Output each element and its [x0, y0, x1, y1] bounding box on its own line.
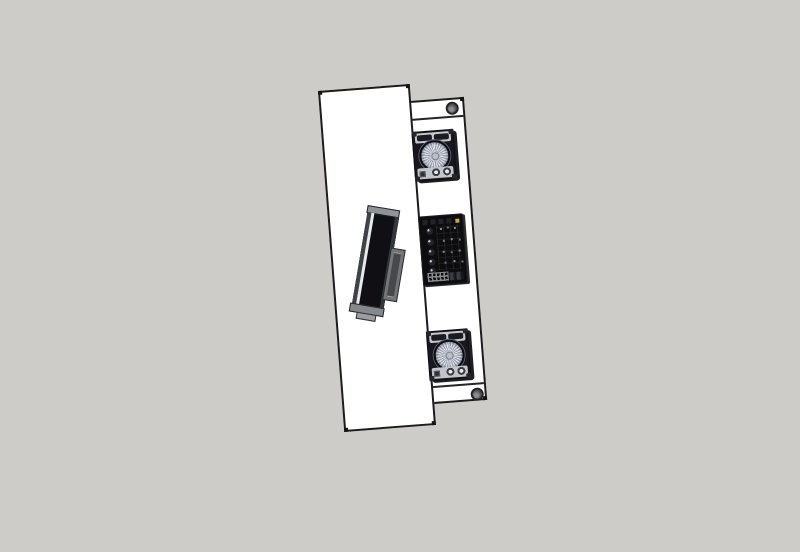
speaker-corner-cap	[426, 331, 431, 336]
speaker-corner-cap	[429, 376, 434, 381]
speaker-corner-cap	[463, 328, 468, 333]
mixer-control-specks	[419, 217, 421, 219]
corner-endpoint	[318, 91, 322, 95]
mixer-knob	[428, 259, 436, 267]
speaker-knob	[457, 366, 467, 376]
speaker-corner-cap	[411, 132, 416, 137]
corner-endpoint	[483, 396, 487, 400]
speaker-top[interactable]	[411, 129, 457, 182]
speaker-power-switch	[419, 171, 425, 177]
speaker-bottom[interactable]	[426, 328, 472, 381]
cable-grommet-top[interactable]	[445, 101, 459, 115]
corner-endpoint	[406, 84, 410, 88]
speaker-corner-cap	[466, 373, 471, 378]
woofer-dust-cap	[431, 151, 440, 160]
corner-endpoint	[432, 421, 436, 425]
shelf-edge-line	[408, 115, 463, 121]
speaker-corner-cap	[452, 174, 457, 179]
corner-endpoint	[460, 97, 464, 101]
speaker-control-panel	[417, 166, 454, 180]
modeling-viewport[interactable]	[0, 0, 800, 552]
speaker-corner-cap	[448, 129, 453, 134]
speaker-control-panel	[432, 365, 469, 379]
corner-endpoint	[344, 428, 348, 432]
desk-model	[318, 84, 436, 432]
mixer-knob	[427, 239, 435, 247]
power-led	[455, 219, 459, 223]
speaker-knob	[442, 167, 452, 177]
io-jack-cluster	[427, 272, 449, 283]
channel-strip-grid	[436, 224, 463, 271]
speaker-knob	[431, 168, 441, 178]
speaker-power-switch	[434, 370, 440, 376]
speaker-knob	[446, 367, 456, 377]
cable-grommet-bottom[interactable]	[470, 387, 484, 401]
speaker-port	[434, 133, 449, 140]
mixer-knob	[426, 228, 434, 236]
speaker-corner-cap	[415, 176, 420, 181]
io-connector-row	[449, 271, 464, 280]
speaker-port	[448, 333, 463, 340]
mixer-knob	[427, 249, 435, 257]
mixer-unit[interactable]	[418, 213, 468, 286]
woofer-dust-cap	[445, 351, 454, 360]
